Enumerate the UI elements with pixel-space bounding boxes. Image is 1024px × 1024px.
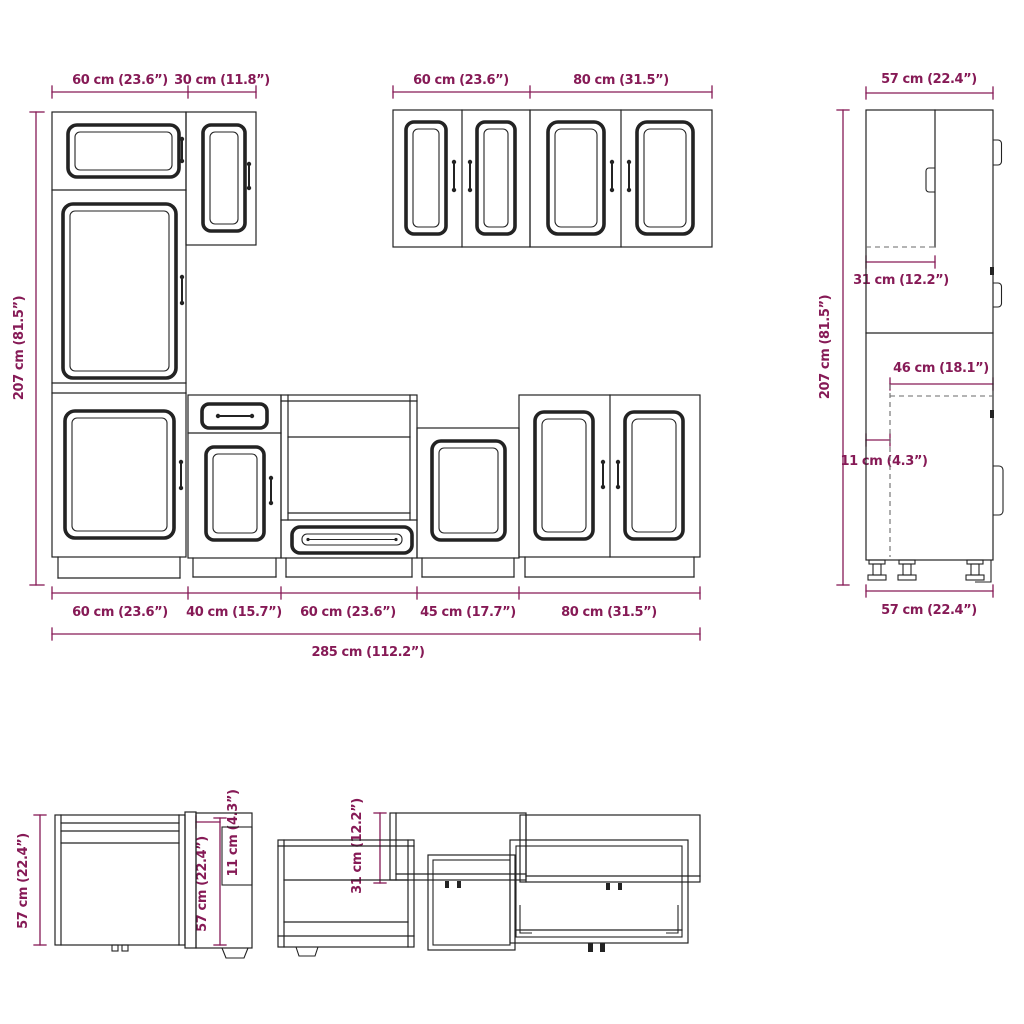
- plan-base-cabinet-80: [510, 840, 688, 952]
- wall-cabinet-80: [530, 110, 712, 247]
- wall-80-right-door: [637, 122, 693, 234]
- dim-label-side-toe-11: 11 cm (4.3”): [840, 454, 927, 469]
- front-view-bottom-dimensions: 60 cm (23.6”) 40 cm (15.7”) 60 cm (23.6”…: [52, 587, 700, 660]
- base-cabinet-80: [519, 395, 700, 577]
- dim-label-base-60-mid: 60 cm (23.6”): [300, 605, 396, 620]
- wall-cabinet-30: [186, 112, 256, 245]
- dim-label-wall-80: 80 cm (31.5”): [573, 73, 669, 88]
- front-view-top-dimensions: 60 cm (23.6”) 30 cm (11.8”) 60 cm (23.6”…: [52, 73, 712, 98]
- dim-label-base-80: 80 cm (31.5”): [561, 605, 657, 620]
- wall-30-door-panel: [203, 125, 245, 231]
- base-cabinet-40: [188, 395, 281, 577]
- tall-cabinet-60: [52, 112, 186, 578]
- side-carcass: [866, 110, 993, 560]
- dim-label-side-depth-46: 46 cm (18.1”): [893, 361, 989, 376]
- dim-label-base-60-left: 60 cm (23.6”): [72, 605, 168, 620]
- base-cabinet-45: [417, 428, 519, 577]
- base-80-right-door: [625, 412, 683, 539]
- wall-cabinet-60: [393, 110, 530, 247]
- plan-view-cabinets: [55, 812, 700, 958]
- base-40-door-panel: [206, 447, 264, 540]
- dim-label-side-depth-31: 31 cm (12.2”): [853, 273, 949, 288]
- side-foot-right: [966, 560, 984, 580]
- side-view-cabinet: [866, 110, 1003, 582]
- tall-middle-door-panel: [63, 204, 176, 378]
- dim-label-plan-unit-57: 57 cm (22.4”): [195, 836, 210, 932]
- side-handle-bottom: [993, 466, 1003, 515]
- base-80-left-door: [535, 412, 593, 539]
- plan-oven-housing-60: [278, 840, 414, 956]
- base-45-door-panel: [432, 441, 505, 540]
- side-foot-left: [868, 560, 886, 580]
- dim-label-side-width-57: 57 cm (22.4”): [881, 72, 977, 87]
- dim-label-side-bottom-57: 57 cm (22.4”): [881, 603, 977, 618]
- side-handle-middle: [993, 283, 1002, 307]
- plan-wall-cabinet-60: [390, 813, 526, 888]
- side-upper-door-handle: [926, 168, 935, 192]
- wall-80-left-door: [548, 122, 604, 234]
- tall-top-door-panel: [68, 125, 179, 177]
- side-foot-middle: [898, 560, 916, 580]
- tall-bottom-door-panel: [65, 411, 174, 538]
- dim-label-wall-60-left: 60 cm (23.6”): [72, 73, 168, 88]
- plan-base-cabinet-60: [55, 815, 185, 951]
- dim-label-plan-toe-11: 11 cm (4.3”): [226, 789, 241, 876]
- dim-label-plan-depth-57: 57 cm (22.4”): [16, 833, 31, 929]
- cabinet-dimension-diagram: 60 cm (23.6”) 30 cm (11.8”) 60 cm (23.6”…: [0, 0, 1024, 1024]
- side-hinge-mark-lower: [990, 410, 994, 418]
- dim-label-wall-30: 30 cm (11.8”): [174, 73, 270, 88]
- dim-label-side-height-207: 207 cm (81.5”): [818, 295, 833, 399]
- wall-60-right-door: [477, 122, 515, 234]
- dim-label-base-40: 40 cm (15.7”): [186, 605, 282, 620]
- plan-wall-cabinet-80: [520, 815, 700, 890]
- side-view-dimensions: 57 cm (22.4”) 207 cm (81.5”) 31 cm (12.2…: [818, 72, 993, 618]
- wall-60-left-door: [406, 122, 446, 234]
- dim-label-base-45: 45 cm (17.7”): [420, 605, 516, 620]
- dim-label-total-285: 285 cm (112.2”): [312, 645, 425, 660]
- dim-label-wall-60-mid: 60 cm (23.6”): [413, 73, 509, 88]
- oven-housing-60: [281, 395, 417, 577]
- side-handle-top: [993, 140, 1002, 165]
- plan-base-cabinet-45: [428, 855, 515, 950]
- front-view-height-dimension: 207 cm (81.5”): [12, 112, 44, 585]
- dim-label-height-207: 207 cm (81.5”): [12, 296, 27, 400]
- side-hinge-mark-upper: [990, 267, 994, 275]
